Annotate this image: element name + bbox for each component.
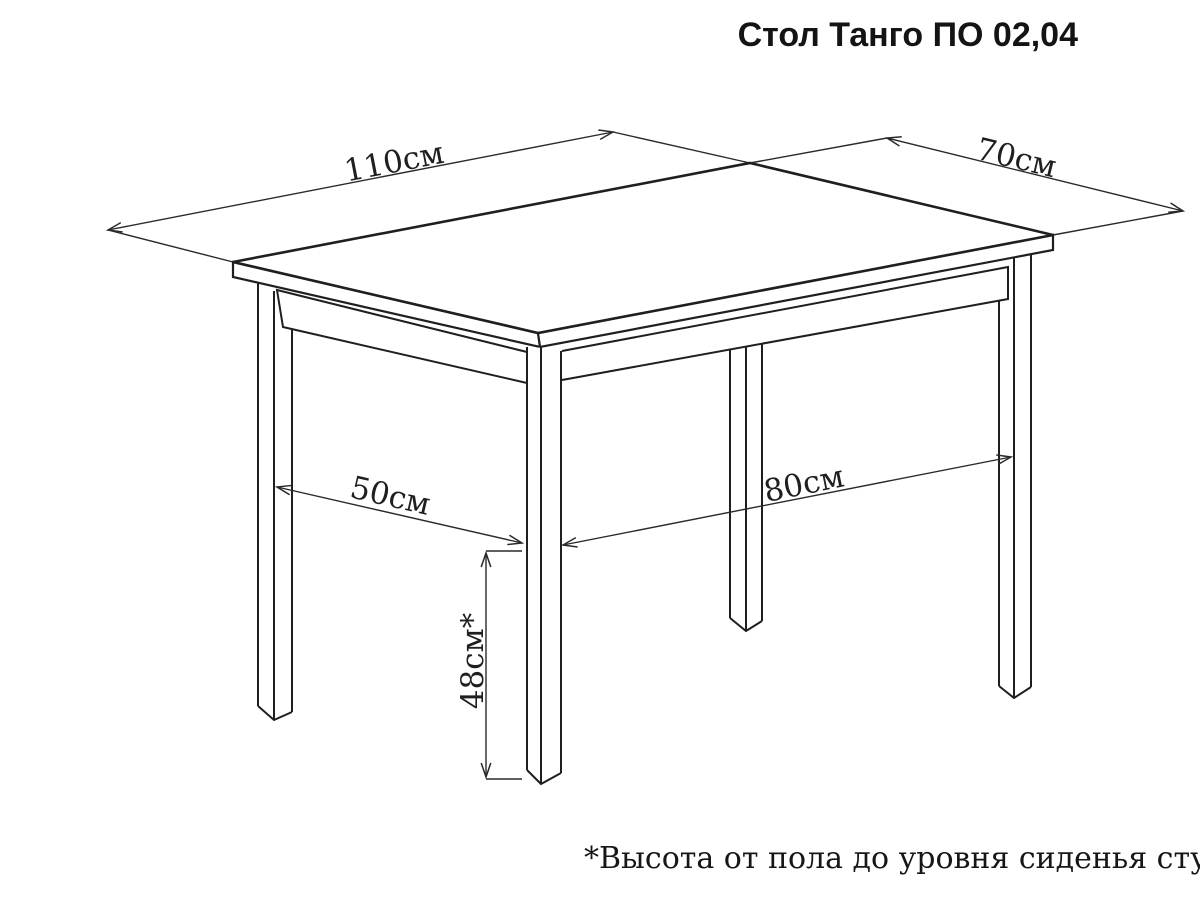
table-leg-rear-left [258,283,292,720]
dimension-leg-span-depth: 50см [277,470,522,543]
drawing-page: Стол Танго ПО 02,04 110см 70см [0,0,1200,900]
dim-label-50: 50см [347,470,434,523]
table-drawing-svg: 110см 70см [0,0,1200,900]
dimension-leg-span-length: 80см [563,457,1011,545]
dimension-seat-height: 48см* [455,551,522,779]
table-leg-right [999,253,1031,698]
dim-label-80: 80см [761,458,847,509]
dim-label-110: 110см [341,135,447,190]
dim-label-70: 70см [973,131,1060,185]
dim-label-48: 48см* [455,613,491,709]
table-leg-rear-middle [730,334,762,631]
table-leg-front [527,347,561,784]
footnote: *Высота от пола до уровня сиденья стула [584,841,1200,876]
